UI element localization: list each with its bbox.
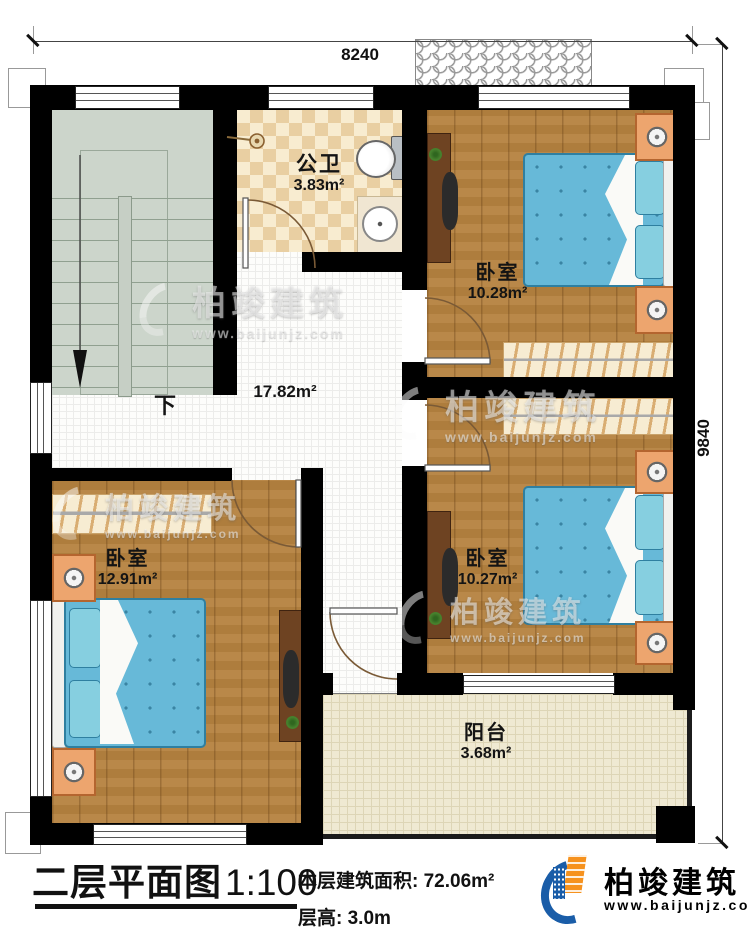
stairs-down-label: 下 [145, 393, 185, 418]
wall-stair-bathroom [213, 110, 237, 395]
pillow [635, 161, 665, 215]
brand-website: www.baijunjz.com [604, 897, 750, 913]
room-label-bedroom-mr: 卧室 10.27m² [430, 548, 545, 589]
brand-name: 柏竣建筑 [604, 858, 740, 902]
monitor-icon [442, 172, 458, 230]
dimension-extension [698, 843, 724, 844]
room-area: 17.82m² [253, 382, 316, 401]
logo-tower-blue [553, 867, 565, 899]
down-text: 下 [154, 393, 176, 418]
floor-area-value: 72.06m² [424, 871, 495, 892]
wall-bedroom-left-hall [301, 468, 323, 845]
balcony-parapet-bottom [323, 834, 692, 839]
floor-height-label: 层高: [298, 908, 342, 929]
plan-title-text: 二层平面图 [32, 852, 222, 906]
wall-bedrooms-divider [427, 377, 673, 398]
wall-center-vertical [402, 362, 427, 400]
window [463, 675, 615, 694]
stair-divider [118, 196, 132, 397]
room-label-balcony: 阳台 3.68m² [430, 722, 542, 763]
plant-icon [286, 716, 299, 729]
balcony-floor [323, 693, 687, 835]
balcony-corner-column [656, 806, 695, 843]
title-underline [35, 904, 297, 909]
plant-icon [429, 148, 442, 161]
room-area: 10.27m² [430, 571, 545, 589]
right-dimension-line [722, 44, 723, 845]
wall-bedroom-left-top [52, 468, 232, 481]
pillow [69, 680, 101, 738]
window [30, 600, 52, 797]
floor-height-row: 层高: 3.0m [298, 903, 391, 930]
wardrobe [52, 494, 212, 534]
plan-title: 二层平面图 1:100 [32, 852, 318, 906]
wall-balcony-top [613, 673, 673, 695]
wall-balcony-stub [321, 673, 333, 695]
room-name: 卧室 [430, 548, 545, 571]
pillow [69, 608, 101, 668]
room-label-hall: 17.82m² [230, 382, 340, 402]
nightstand-lamp [52, 748, 96, 796]
wall-balcony-top [397, 673, 463, 695]
floor-area-label: 本层建筑面积: [298, 871, 418, 892]
bed [523, 486, 675, 625]
wardrobe [503, 342, 675, 379]
wardrobe [503, 398, 675, 435]
window [75, 86, 180, 109]
wall-right [673, 85, 695, 710]
brand-logo-icon [542, 851, 598, 915]
pillow [635, 560, 665, 615]
floor-height-value: 3.0m [348, 908, 391, 929]
room-name: 阳台 [430, 722, 542, 745]
room-name: 卧室 [440, 262, 555, 285]
room-label-bedroom-left: 卧室 12.91m² [70, 548, 185, 589]
window [268, 86, 374, 109]
floor-area-row: 本层建筑面积: 72.06m² [298, 866, 494, 893]
dimension-extension [698, 44, 724, 45]
top-dimension-line [33, 41, 692, 42]
right-dimension-value: 9840 [694, 407, 714, 469]
room-label-bedroom-tr: 卧室 10.28m² [440, 262, 555, 303]
plant-icon [429, 612, 442, 625]
room-name: 卧室 [70, 548, 185, 571]
pillow [635, 495, 665, 550]
floor-plan-page: 8240 9840 [0, 0, 750, 931]
room-area: 3.68m² [430, 745, 542, 763]
pillow [635, 225, 665, 279]
window [93, 824, 247, 845]
window [478, 86, 630, 109]
roof-tiles-hatch [415, 39, 592, 87]
window [30, 382, 52, 454]
bed [52, 598, 202, 748]
room-name: 公卫 [269, 153, 369, 177]
room-area: 3.83m² [269, 177, 369, 195]
stair-treads [52, 198, 213, 395]
top-dimension-value: 8240 [325, 45, 395, 65]
wall-center-vertical [402, 110, 427, 290]
monitor-icon [283, 650, 299, 708]
wall-center-vertical [402, 466, 427, 695]
room-area: 12.91m² [70, 571, 185, 589]
sink-icon [362, 206, 398, 242]
staircase [52, 110, 213, 395]
room-area: 10.28m² [440, 285, 555, 303]
room-label-bathroom: 公卫 3.83m² [269, 153, 369, 196]
